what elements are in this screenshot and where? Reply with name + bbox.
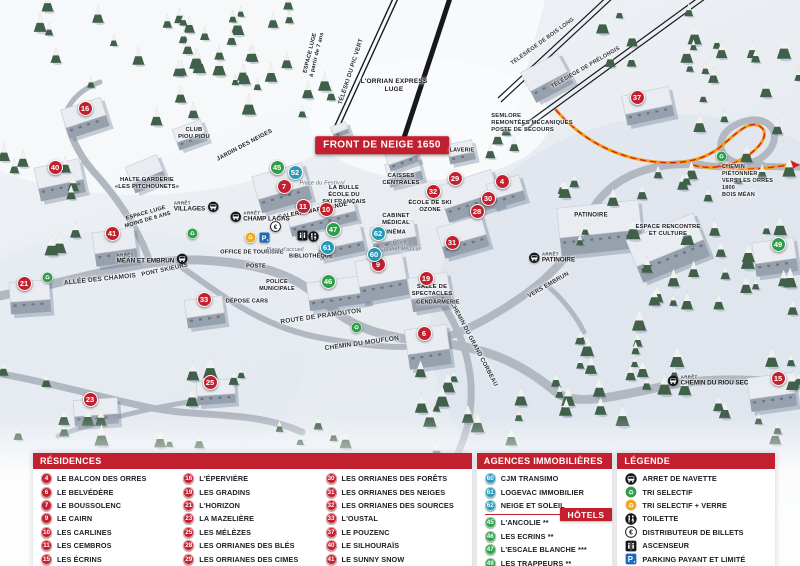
legend-item-label: LES ORRIANES DES FORÊTS — [342, 474, 448, 483]
legend-item: 37LE POUZENC — [326, 526, 468, 539]
legend-item-label: LES MÉLÈZES — [199, 528, 251, 537]
legend-item: 49LES TRAPPEURS ** — [485, 556, 609, 566]
hotels-header: HÔTELS — [560, 508, 613, 521]
legende-header: LÉGENDE — [617, 453, 775, 469]
legend-item-number: 61 — [485, 487, 496, 498]
legend-symbols: LÉGENDE ARRET DE NAVETTE♻TRI SELECTIF♻TR… — [617, 453, 775, 566]
legend-item-number: 10 — [41, 527, 52, 538]
legend-item-label: LES GRADINS — [199, 488, 250, 497]
legend-agencies-hotels: AGENCES IMMOBILIÈRES 60CJM TRANSIMO61LOG… — [477, 453, 613, 566]
legend-item: 19LES GRADINS — [183, 485, 325, 498]
legend-item-label: LE SILHOURAÏS — [342, 541, 400, 550]
legend-item-label: L'ÉPERVIÈRE — [199, 474, 248, 483]
resort-map: FRONT DE NEIGE 1650L'ORRIAN EXPRESS LUGE… — [0, 0, 800, 566]
legend-item-number: 11 — [41, 540, 52, 551]
legend-symbol-item: €DISTRIBUTEUR DE BILLETS — [625, 526, 771, 539]
bus-icon — [625, 473, 637, 485]
legend-item-label: LES ORRIANES DES NEIGES — [342, 488, 446, 497]
svg-text:♻: ♻ — [628, 489, 634, 496]
legend-item-label: LA MAZELIÈRE — [199, 514, 254, 523]
svg-text:€: € — [630, 530, 634, 537]
legend: RÉSIDENCES 4LE BALCON DES ORRES6LE BELVÉ… — [33, 453, 775, 566]
legend-item-label: L'ESCALE BLANCHE *** — [501, 545, 587, 554]
legend-item-label: LES CARLINES — [57, 528, 112, 537]
legend-item: 21L'HORIZON — [183, 499, 325, 512]
legend-item-label: L'ANCOLIE ** — [501, 518, 549, 527]
legend-item-label: LES ORRIANES DES SOURCES — [342, 501, 454, 510]
legend-item-number: 19 — [183, 487, 194, 498]
legend-item-number: 30 — [326, 473, 337, 484]
legend-item: 11LES CEMBROS — [41, 539, 183, 552]
svg-text:♻: ♻ — [628, 503, 634, 510]
legend-item: 60CJM TRANSIMO — [485, 472, 609, 485]
legend-item-label: LES ORRIANES DES CIMES — [199, 555, 298, 564]
legend-symbol-label: ARRET DE NAVETTE — [642, 474, 716, 483]
legend-symbol-label: PARKING PAYANT ET LIMITÉ — [642, 555, 745, 564]
legend-item-number: 41 — [326, 554, 337, 565]
legend-item-label: CJM TRANSIMO — [501, 474, 559, 483]
legend-item-number: 45 — [485, 517, 496, 528]
legend-item-label: NEIGE ET SOLEIL — [501, 501, 565, 510]
hotels-section: HÔTELS45L'ANCOLIE **46LES ECRINS **47L'E… — [485, 514, 609, 566]
legend-item-number: 6 — [41, 487, 52, 498]
legend-item: 15LES ÉCRINS — [41, 552, 183, 565]
legend-item: 61LOGEVAC IMMOBILIER — [485, 485, 609, 498]
legend-item-label: LES ECRINS ** — [501, 532, 554, 541]
legend-item: 46LES ECRINS ** — [485, 530, 609, 543]
legend-item-number: 62 — [485, 500, 496, 511]
legend-item: 25LES MÉLÈZES — [183, 526, 325, 539]
legend-symbol-label: TRI SELECTIF — [642, 488, 692, 497]
legend-item-number: 37 — [326, 527, 337, 538]
legend-item: 30LES ORRIANES DES FORÊTS — [326, 472, 468, 485]
agencies-header: AGENCES IMMOBILIÈRES — [477, 453, 613, 469]
legend-item: 16L'ÉPERVIÈRE — [183, 472, 325, 485]
legend-item: 41LE SUNNY SNOW — [326, 552, 468, 565]
legend-item: 7LE BOUSSOLENC — [41, 499, 183, 512]
legend-symbol-label: TOILETTE — [642, 514, 678, 523]
legend-symbol-item: ♻TRI SELECTIF + VERRE — [625, 499, 771, 512]
legend-item-number: 60 — [485, 473, 496, 484]
legend-symbol-label: TRI SELECTIF + VERRE — [642, 501, 727, 510]
legend-symbol-item: ASCENSEUR — [625, 539, 771, 552]
legend-item-number: 29 — [183, 554, 194, 565]
legend-item-label: LE BELVÉDÈRE — [57, 488, 114, 497]
legend-item-number: 40 — [326, 540, 337, 551]
legend-symbol-item: ARRET DE NAVETTE — [625, 472, 771, 485]
legend-item-number: 21 — [183, 500, 194, 511]
legend-item: 6LE BELVÉDÈRE — [41, 485, 183, 498]
legend-item-label: L'OUSTAL — [342, 514, 378, 523]
legend-item: 4LE BALCON DES ORRES — [41, 472, 183, 485]
recycle-yellow-icon: ♻ — [625, 499, 637, 511]
toilet-icon — [625, 513, 637, 525]
legend-symbol-label: DISTRIBUTEUR DE BILLETS — [642, 528, 743, 537]
legend-symbol-item: TOILETTE — [625, 512, 771, 525]
legend-item-label: LE CAIRN — [57, 514, 92, 523]
legend-item-label: LE SUNNY SNOW — [342, 555, 405, 564]
legend-item-label: LES ÉCRINS — [57, 555, 102, 564]
legend-item-label: LES ORRIANES DES BLÉS — [199, 541, 294, 550]
parking-icon: P — [625, 553, 637, 565]
legend-item-number: 28 — [183, 540, 194, 551]
legend-item-number: 46 — [485, 531, 496, 542]
legend-item: 10LES CARLINES — [41, 526, 183, 539]
legend-residences: RÉSIDENCES 4LE BALCON DES ORRES6LE BELVÉ… — [33, 453, 472, 566]
residences-header: RÉSIDENCES — [33, 453, 472, 469]
legend-item: 32LES ORRIANES DES SOURCES — [326, 499, 468, 512]
recycle-green-icon: ♻ — [625, 486, 637, 498]
legend-item-number: 23 — [183, 513, 194, 524]
legend-item-number: 4 — [41, 473, 52, 484]
legend-item-label: LOGEVAC IMMOBILIER — [501, 488, 584, 497]
elevator-icon — [625, 540, 637, 552]
legend-item-number: 32 — [326, 500, 337, 511]
legend-item-label: LE BOUSSOLENC — [57, 501, 121, 510]
legend-item: 9LE CAIRN — [41, 512, 183, 525]
legend-symbol-item: PPARKING PAYANT ET LIMITÉ — [625, 552, 771, 565]
legend-item-label: LES TRAPPEURS ** — [501, 559, 572, 566]
legend-item-number: 9 — [41, 513, 52, 524]
legend-item: 47L'ESCALE BLANCHE *** — [485, 543, 609, 556]
legend-item-number: 33 — [326, 513, 337, 524]
legend-item-number: 25 — [183, 527, 194, 538]
legend-symbol-label: ASCENSEUR — [642, 541, 689, 550]
legend-item: 31LES ORRIANES DES NEIGES — [326, 485, 468, 498]
legend-item-label: LES CEMBROS — [57, 541, 112, 550]
legend-item-number: 16 — [183, 473, 194, 484]
legend-item-number: 47 — [485, 544, 496, 555]
svg-text:P: P — [628, 555, 633, 564]
legend-item: 33L'OUSTAL — [326, 512, 468, 525]
legend-item-number: 15 — [41, 554, 52, 565]
legend-item-number: 31 — [326, 487, 337, 498]
legend-item: 23LA MAZELIÈRE — [183, 512, 325, 525]
legend-item: 29LES ORRIANES DES CIMES — [183, 552, 325, 565]
legend-item: 40LE SILHOURAÏS — [326, 539, 468, 552]
legend-item-number: 7 — [41, 500, 52, 511]
legend-item-label: LE BALCON DES ORRES — [57, 474, 146, 483]
legend-symbol-item: ♻TRI SELECTIF — [625, 485, 771, 498]
euro-icon: € — [625, 526, 637, 538]
legend-item-label: LE POUZENC — [342, 528, 390, 537]
legend-item-number: 49 — [485, 558, 496, 566]
legend-item-label: L'HORIZON — [199, 501, 240, 510]
legend-item: 28LES ORRIANES DES BLÉS — [183, 539, 325, 552]
